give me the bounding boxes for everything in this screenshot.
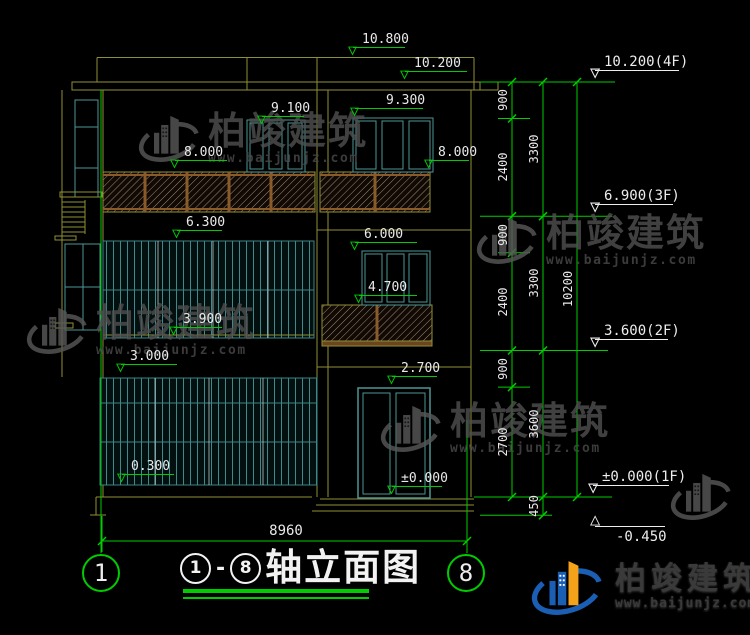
brand-name: 柏竣建筑	[615, 563, 750, 596]
axis-bubble-1-label: 1	[94, 559, 108, 587]
level-triangle-icon: ▽	[117, 470, 126, 485]
title-separator: -	[216, 556, 225, 581]
level-triangle-icon: ▽	[350, 104, 359, 119]
title-axis-to: 8	[230, 553, 261, 584]
chain-dim-2400: 2400	[496, 287, 510, 316]
title-underline-thick	[183, 589, 369, 593]
cad-elevation-canvas: 10.800 ▽10.200 ▽9.300 ▽9.100 ▽8.000 ▽8.0…	[0, 0, 750, 635]
level-triangle-icon: ▽	[257, 112, 266, 127]
chain-dim-3300: 3300	[527, 135, 541, 164]
title-underline-thin	[183, 597, 369, 599]
level-triangle-icon: ▽	[354, 291, 363, 306]
level-value: 10.200	[414, 56, 461, 71]
level-value: 3.000	[130, 349, 169, 364]
chain-dim-900: 900	[496, 358, 510, 380]
level-value: 6.300	[186, 215, 225, 230]
floor-triangle-icon: ▽	[590, 65, 600, 82]
level-value: 9.100	[271, 101, 310, 116]
level-triangle-icon: ▽	[169, 323, 178, 338]
title-text: 轴立面图	[265, 548, 421, 588]
axis-bubble-8-label: 8	[459, 559, 473, 587]
level-underline	[429, 160, 469, 161]
level-underline	[405, 71, 467, 72]
chain-dim-900: 900	[496, 89, 510, 111]
level-triangle-icon: ▽	[387, 372, 396, 387]
level-triangle-icon: ▽	[350, 238, 359, 253]
floor-underline	[595, 70, 679, 71]
floor-value: -0.450	[616, 529, 667, 545]
axis-bubble-8: 8	[447, 554, 485, 592]
level-underline	[121, 364, 177, 365]
window-9100	[247, 120, 305, 172]
level-value: 8.000	[184, 145, 223, 160]
chain-dim-2700: 2700	[496, 428, 510, 457]
level-triangle-icon: ▽	[400, 67, 409, 82]
level-underline	[392, 376, 437, 377]
floor-value: 3.600(2F)	[604, 323, 680, 339]
level-value: 3.900	[183, 312, 222, 327]
title-axis-from: 1	[180, 553, 211, 584]
level-value: 9.300	[386, 93, 425, 108]
level-value: 10.800	[362, 32, 409, 47]
floor-value: ±0.000(1F)	[602, 469, 686, 485]
floor-value: 6.900(3F)	[604, 188, 680, 204]
window-9300	[353, 118, 433, 172]
chain-dim-900: 900	[496, 224, 510, 246]
left-stair-tower	[55, 90, 102, 377]
level-underline	[175, 160, 227, 161]
chain-dim-3300: 3300	[527, 269, 541, 298]
level-underline	[355, 108, 423, 109]
level-triangle-icon: ▽	[424, 156, 433, 171]
floor-underline	[595, 526, 665, 527]
level-underline	[122, 474, 174, 475]
level-value: ±0.000	[401, 471, 448, 486]
level-value: 8.000	[438, 145, 477, 160]
level-triangle-icon: ▽	[116, 360, 125, 375]
level-underline	[262, 116, 304, 117]
level-value: 0.300	[131, 459, 170, 474]
railing-8000-right	[320, 172, 430, 212]
chain-dim-2400: 2400	[496, 153, 510, 182]
brand-logo: 柏竣建筑 www.baijunjz.com	[526, 552, 750, 622]
level-underline	[355, 242, 417, 243]
level-value: 6.000	[364, 227, 403, 242]
level-value: 4.700	[368, 280, 407, 295]
floor-triangle-icon: △	[590, 512, 600, 529]
overall-width-dimension: 8960	[256, 523, 316, 539]
floor-triangle-icon: ▽	[590, 334, 600, 351]
brand-url: www.baijunjz.com	[615, 596, 750, 611]
drawing-title: 1 - 8 轴立面图	[180, 548, 421, 588]
axis-bubble-1: 1	[82, 554, 120, 592]
level-triangle-icon: ▽	[387, 482, 396, 497]
window-6000	[362, 251, 430, 305]
level-triangle-icon: ▽	[172, 226, 181, 241]
floor-triangle-icon: ▽	[588, 480, 598, 497]
floor-underline	[595, 339, 668, 340]
balcony-railing-4700	[322, 305, 432, 346]
level-triangle-icon: ▽	[348, 43, 357, 58]
level-underline	[177, 230, 222, 231]
floor-underline	[595, 204, 673, 205]
level-value: 2.700	[401, 361, 440, 376]
level-underline	[392, 486, 442, 487]
chain-dim-10200: 10200	[561, 271, 575, 307]
entry-steps	[312, 499, 474, 511]
level-underline	[359, 295, 417, 296]
level-underline	[353, 47, 405, 48]
floor-triangle-icon: ▽	[590, 199, 600, 216]
level-underline	[174, 327, 222, 328]
railing-8000-left	[103, 172, 315, 212]
level-triangle-icon: ▽	[170, 156, 179, 171]
floor-value: 10.200(4F)	[604, 54, 688, 70]
chain-dim-3600: 3600	[527, 409, 541, 438]
floor-underline	[593, 485, 669, 486]
brand-logo-icon	[526, 552, 608, 622]
chain-dim-450: 450	[527, 495, 541, 517]
